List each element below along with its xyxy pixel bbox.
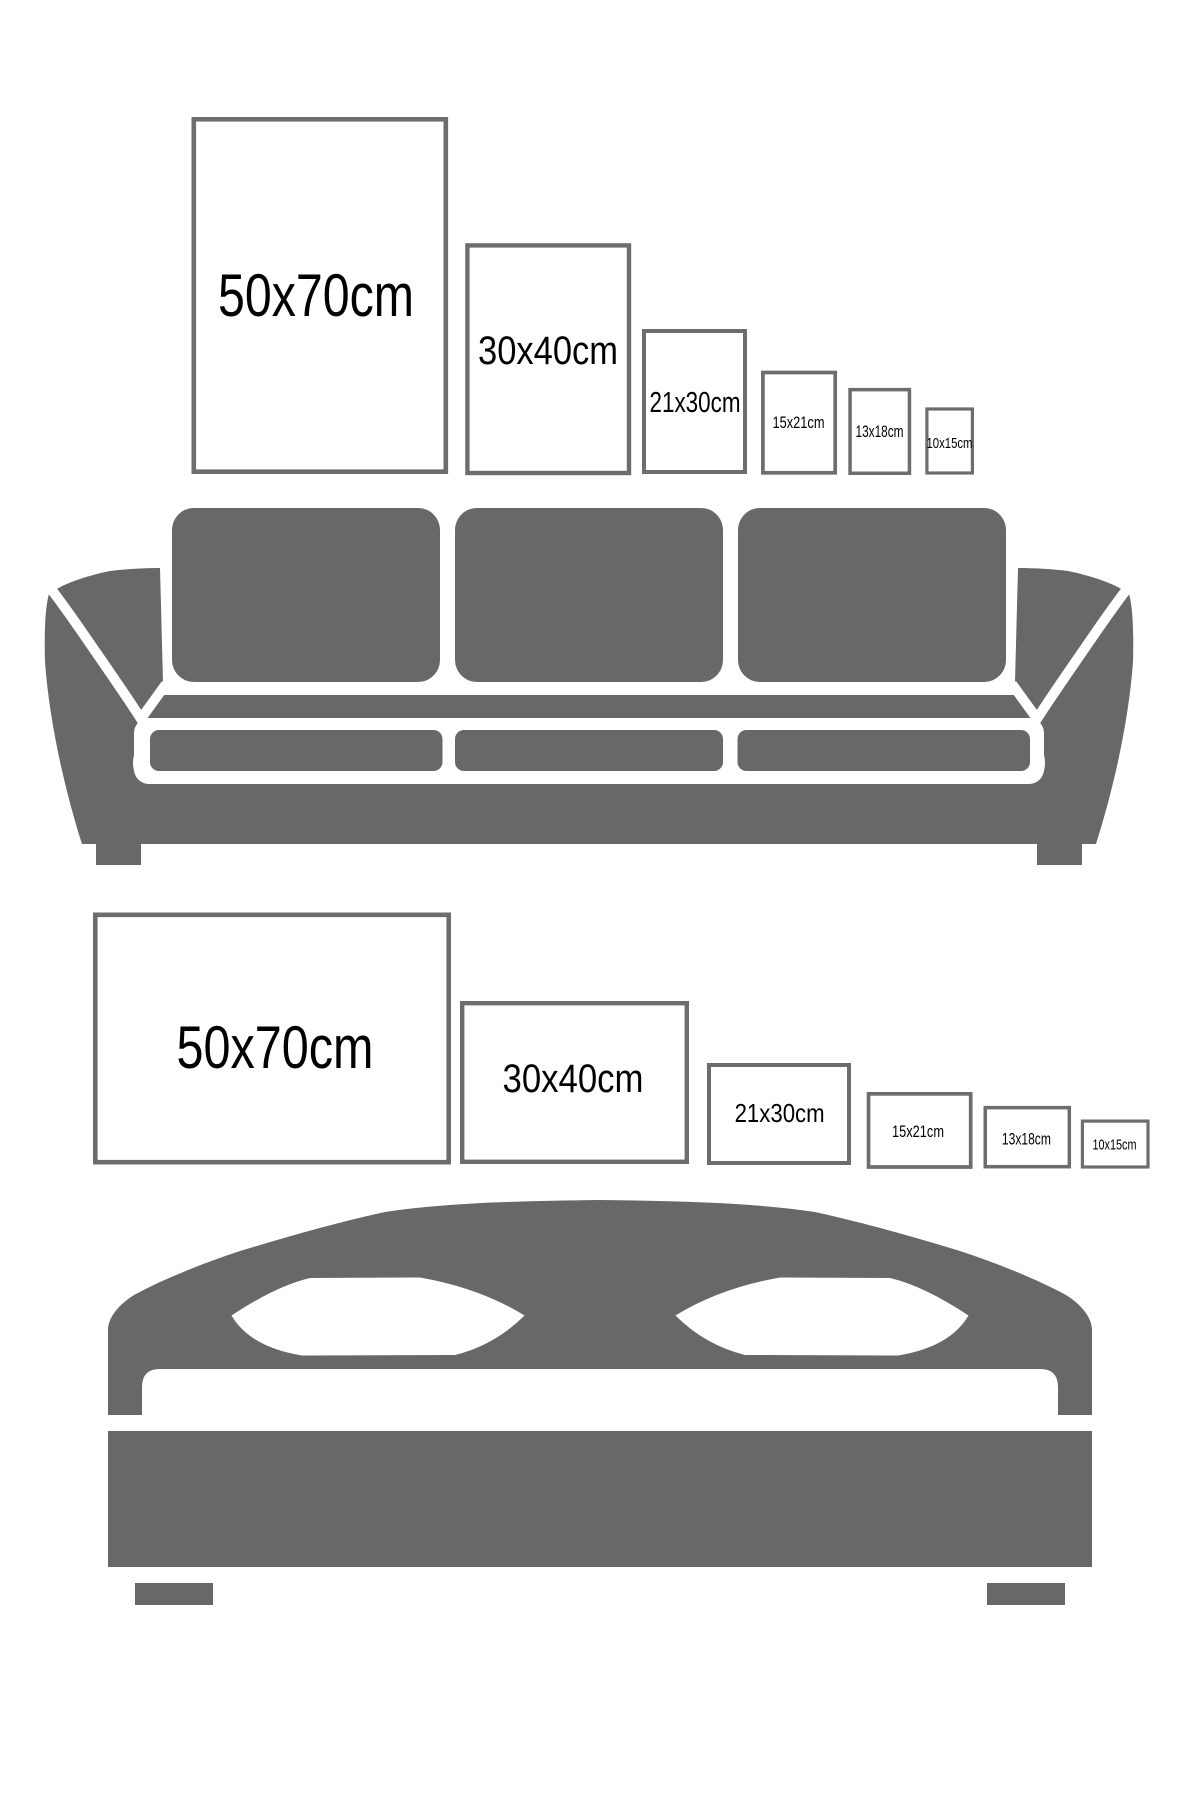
svg-text:50x70cm: 50x70cm	[218, 262, 414, 329]
svg-text:15x21cm: 15x21cm	[773, 414, 825, 432]
svg-text:30x40cm: 30x40cm	[503, 1057, 644, 1101]
svg-text:50x70cm: 50x70cm	[177, 1014, 374, 1081]
svg-text:13x18cm: 13x18cm	[856, 423, 904, 441]
svg-text:15x21cm: 15x21cm	[892, 1122, 944, 1141]
svg-text:10x15cm: 10x15cm	[1093, 1137, 1137, 1154]
svg-text:30x40cm: 30x40cm	[478, 329, 618, 373]
svg-text:21x30cm: 21x30cm	[650, 387, 741, 419]
svg-text:21x30cm: 21x30cm	[735, 1098, 825, 1128]
svg-text:13x18cm: 13x18cm	[1002, 1130, 1051, 1149]
svg-text:10x15cm: 10x15cm	[927, 435, 973, 452]
